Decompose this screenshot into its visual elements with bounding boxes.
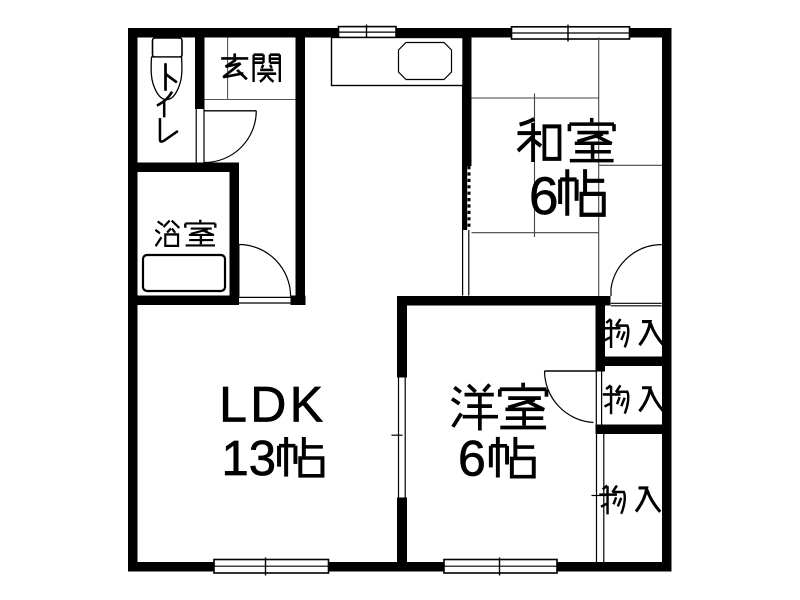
svg-text:6: 6 <box>458 431 486 487</box>
svg-text:13: 13 <box>222 432 277 486</box>
svg-text:6: 6 <box>529 167 558 226</box>
svg-text:LDK: LDK <box>219 377 326 433</box>
